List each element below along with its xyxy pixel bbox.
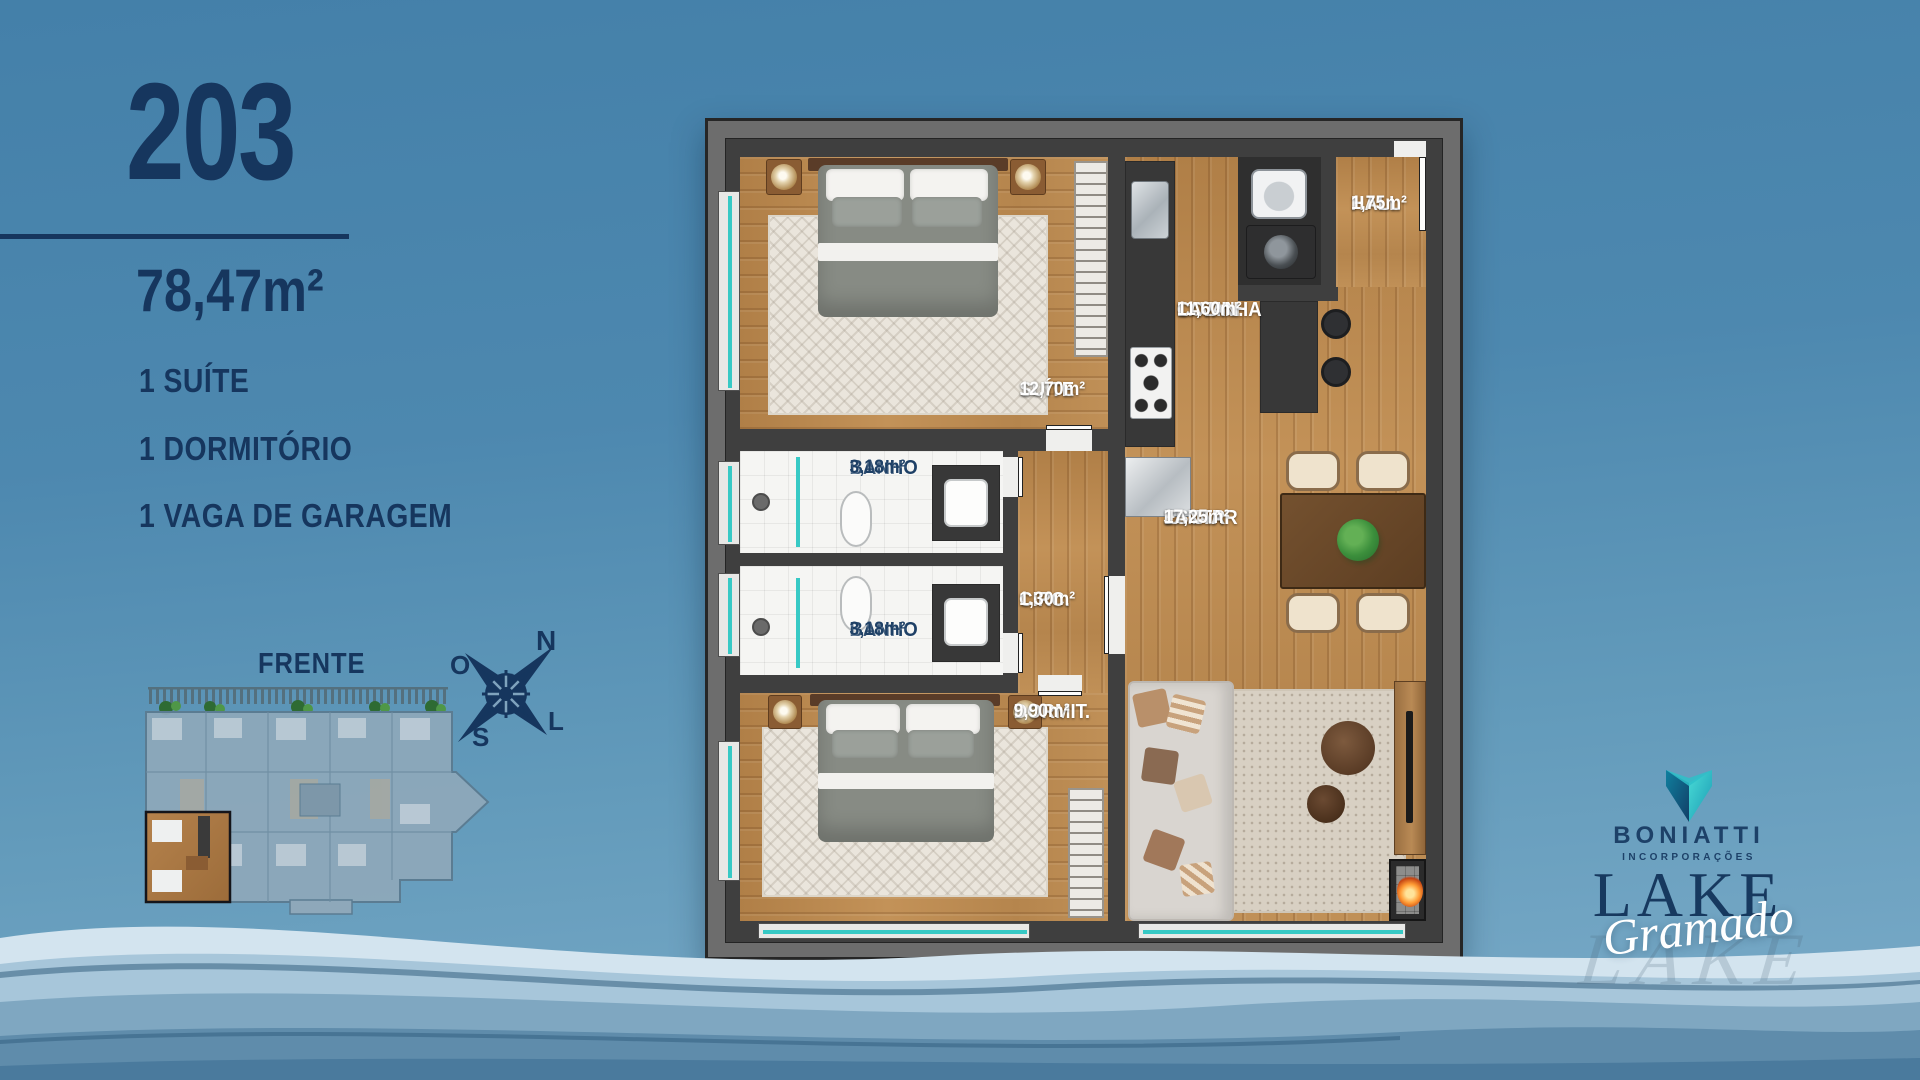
sofa-pillow [1141,747,1179,785]
window-glass [728,196,732,388]
window-dormit-side [718,741,740,881]
pillow [832,730,898,758]
floor-plan: HALL 1,75m² COZINHA LAVAN. 11,60m² SUÍTE… [705,118,1463,960]
pillow [912,197,982,227]
kitchen-sink-icon [1131,181,1169,239]
stool-icon [1321,357,1351,387]
window-glass [728,466,732,542]
room-area: 1,30m² [1019,589,1075,611]
suite-wardrobe [1074,161,1108,357]
door-suite [1046,429,1092,451]
compass-o: O [450,650,470,680]
door-leaf [1046,425,1092,430]
entrance-door-leaf [1419,157,1426,231]
front-label: FRENTE [258,648,365,681]
door-banho1 [1003,457,1018,497]
door-leaf [1018,457,1023,497]
dining-chair [1356,451,1410,491]
island-counter [1260,301,1318,413]
shower-head-icon [752,618,770,636]
washer-icon [1251,169,1307,219]
room-area: 3,18m² [850,457,906,479]
shower-glass [796,457,800,547]
bed-sheet [818,773,994,789]
stove-icon [1130,347,1172,419]
coffee-table-icon [1321,721,1375,775]
sink-icon [944,479,988,527]
room-area: 17,25m² [1164,507,1230,529]
company-name: BONIATTI [1589,822,1789,850]
wall-hall [1321,141,1336,287]
door-leaf [1038,691,1082,696]
shower-glass [796,578,800,668]
wall-center [1108,141,1125,921]
sink-icon [944,598,988,646]
pillow [908,730,974,758]
window-glass [728,578,732,654]
window-suite [718,191,740,391]
room-area: 12,70m² [1019,379,1085,401]
unit-area: 78,47m² [136,256,324,325]
room-area: 1,75m² [1351,193,1407,215]
window-banho2 [718,573,740,657]
room-circ [1018,451,1108,693]
feature-dormitorio: 1 DORMITÓRIO [139,430,352,468]
unit-number: 203 [126,60,294,205]
toilet-icon [840,491,872,547]
feature-suite: 1 SUÍTE [139,362,249,400]
lamp-icon [771,164,797,190]
room-area: 3,18m² [850,619,906,641]
dining-chair [1286,593,1340,633]
compass-rose: N O L S [436,612,588,772]
room-area: 11,60m² [1177,299,1242,321]
stool-icon [1321,309,1351,339]
feature-garagem: 1 VAGA DE GARAGEM [139,497,452,535]
plant-icon [1337,519,1379,561]
bed-sheet [818,243,998,261]
dryer-icon [1246,225,1316,279]
door-leaf [1104,576,1109,654]
entrance-door-gap [1394,141,1426,157]
compass-s: S [472,722,489,752]
compass-n: N [536,625,556,656]
dining-chair [1286,451,1340,491]
window-banho1 [718,461,740,545]
lamp-icon [773,700,797,724]
shower-head-icon [752,493,770,511]
lamp-icon [1015,164,1041,190]
coffee-table-icon [1307,785,1345,823]
door-leaf [1018,633,1023,673]
window-glass [728,746,732,878]
pillow [832,197,902,227]
tv-icon [1406,711,1413,823]
compass-l: L [548,706,564,736]
dining-chair [1356,593,1410,633]
door-circ-estar [1108,576,1125,654]
room-area: 9,90m² [1014,701,1070,723]
divider-line [0,234,349,239]
boniatti-logo-icon [1662,768,1716,824]
room-hall [1336,157,1426,287]
door-banho2 [1003,633,1018,673]
